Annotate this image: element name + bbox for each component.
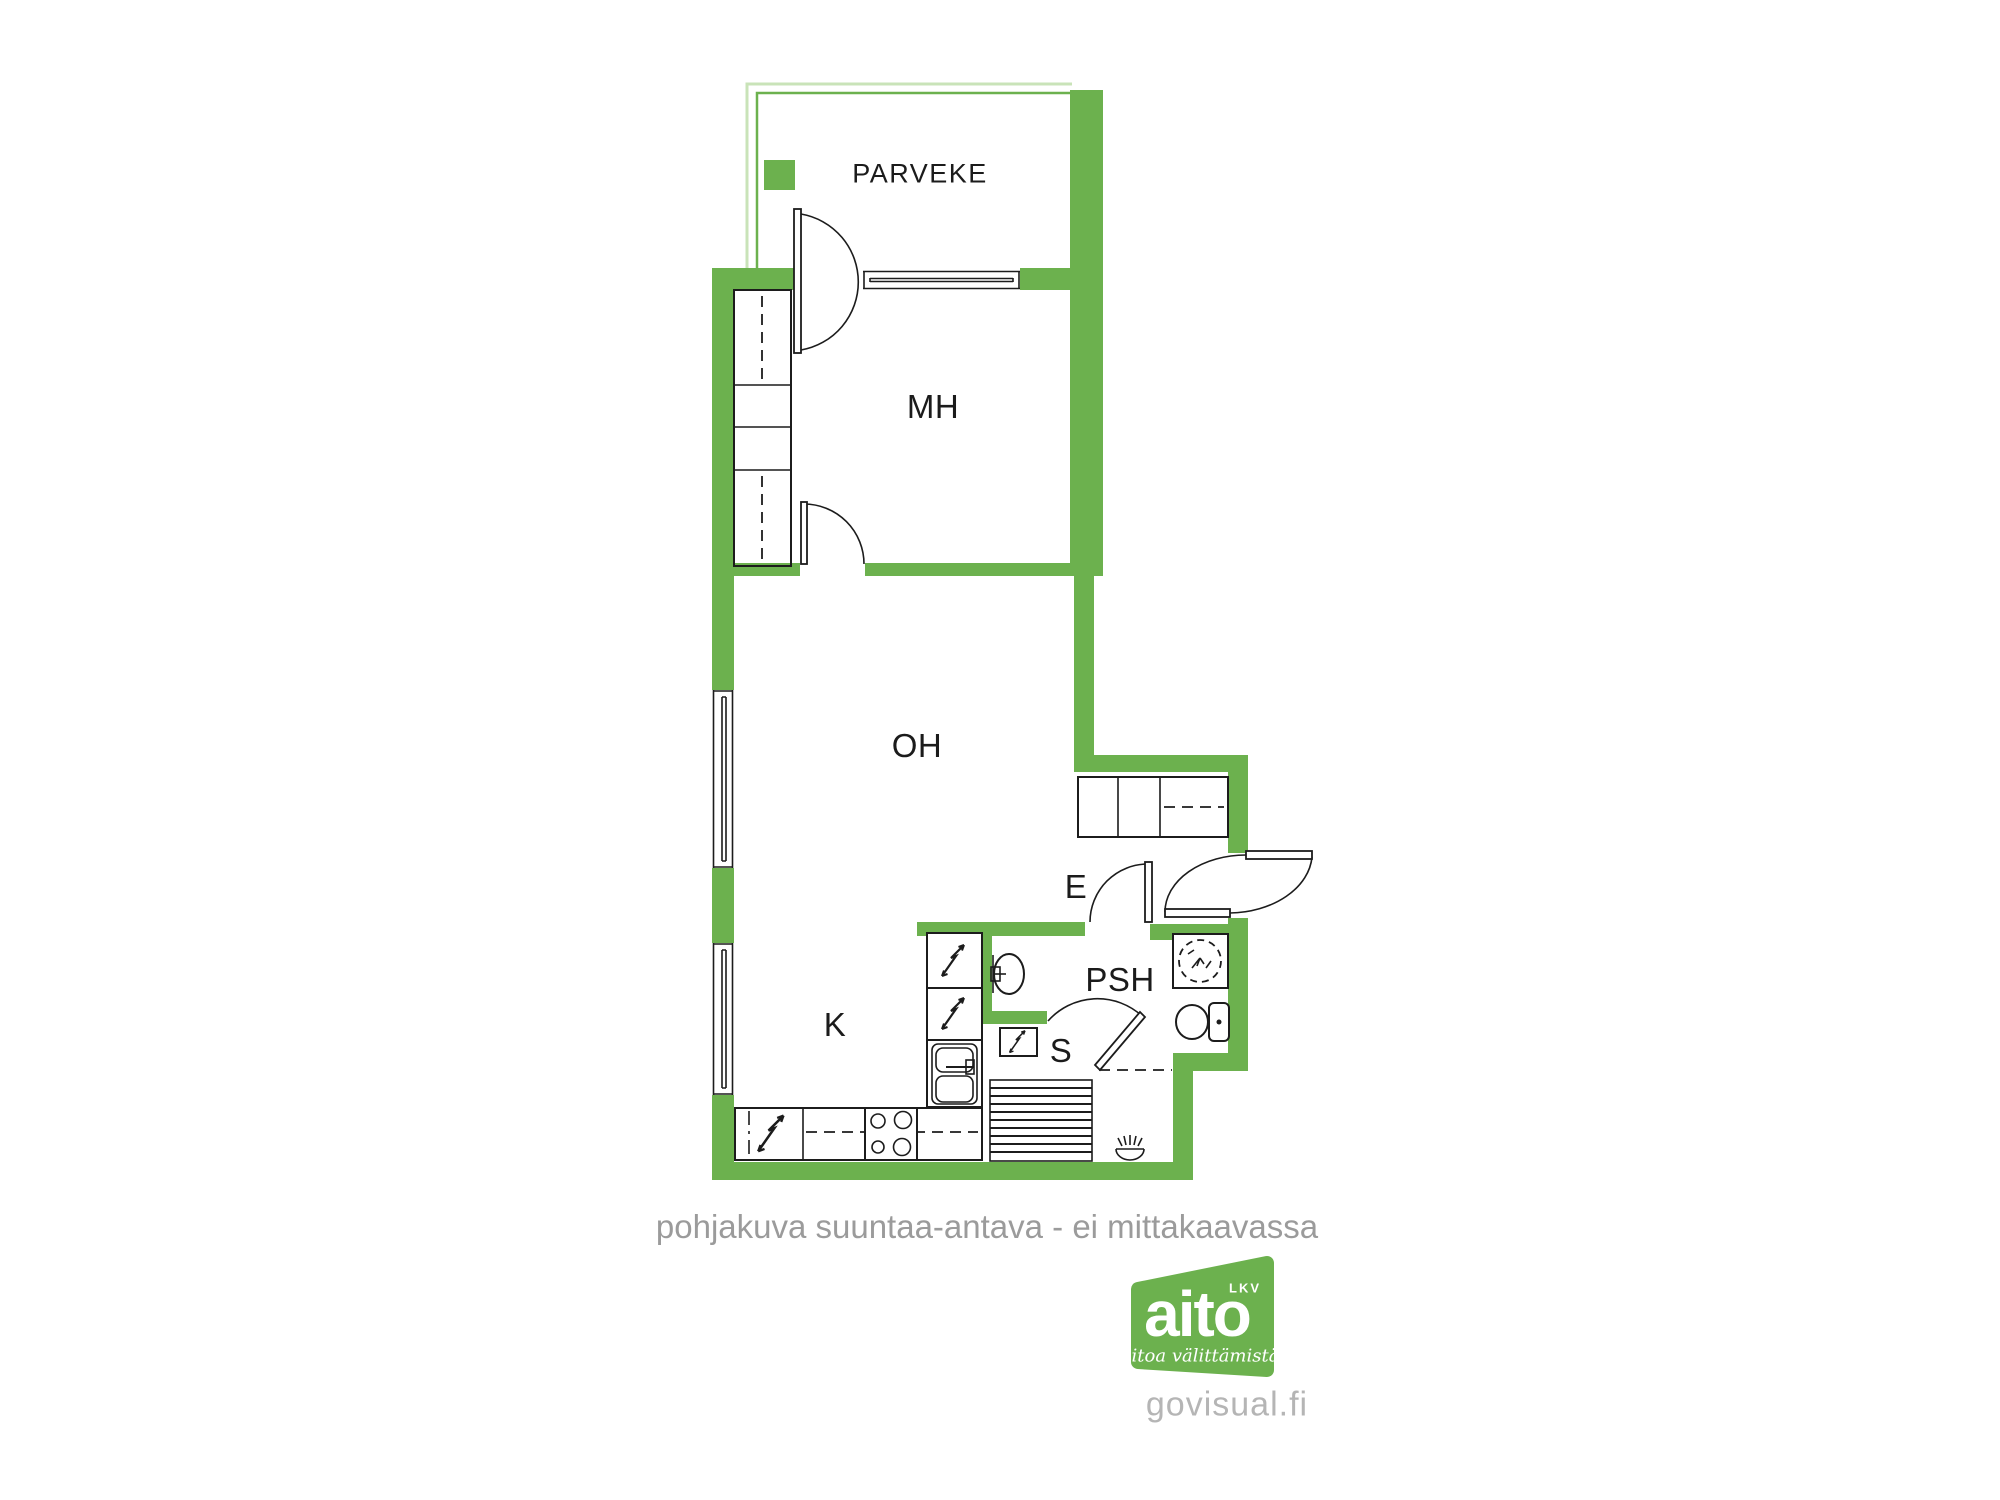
stove-icon: [865, 1108, 917, 1160]
entry-closet-icon: [1078, 777, 1228, 837]
bottom-wall: [712, 1162, 1193, 1180]
oh-right-wall: [1074, 576, 1094, 772]
right-wall-upper: [1070, 90, 1103, 576]
balcony-door-icon: [794, 209, 858, 353]
left-wall-middle: [712, 868, 734, 943]
floorplan-drawing: [0, 0, 2000, 1500]
window-icon: [713, 690, 733, 868]
left-wall-upper: [712, 268, 734, 690]
disclaimer-caption: pohjakuva suuntaa-antava - ei mittakaava…: [656, 1208, 1318, 1246]
website-text: govisual.fi: [1146, 1386, 1308, 1425]
room-label-parveke: PARVEKE: [852, 159, 988, 190]
floorplan-page: PARVEKE MH OH K E PSH S pohjakuva suunta…: [0, 0, 2000, 1500]
mh-bottom-wall-right: [865, 563, 1094, 576]
right-wall-above-door: [1228, 755, 1248, 853]
shower-icon: [1173, 934, 1228, 988]
room-label-k: K: [824, 1006, 847, 1044]
sauna-benches-icon: [990, 1080, 1092, 1161]
window-icon: [863, 271, 1020, 289]
balcony-pillar: [764, 160, 795, 190]
floor-drain-icon: [1116, 1135, 1144, 1160]
fridge-icon: [927, 933, 982, 988]
mh-bottom-wall-left: [712, 563, 800, 576]
room-label-e: E: [1065, 868, 1088, 906]
sauna-wall-stub: [992, 1011, 1047, 1024]
bedroom-door-icon: [801, 502, 864, 564]
entry-top-wall: [1074, 755, 1248, 772]
room-label-mh: MH: [907, 388, 959, 426]
room-label-s: S: [1050, 1032, 1073, 1070]
mh-top-wall-right: [1020, 268, 1074, 290]
front-door-icon: [1165, 851, 1312, 917]
freezer-icon: [927, 988, 982, 1040]
mh-top-wall-left: [712, 268, 795, 290]
aito-logo-tagline: Aitoa välittämistä: [1119, 1346, 1280, 1367]
aito-logo-badge: LKV: [1229, 1281, 1261, 1296]
bathroom-door-icon: [1090, 862, 1152, 922]
toilet-icon: [1176, 1003, 1229, 1041]
kitchen-counter: [735, 1108, 982, 1160]
right-wall-below-door: [1228, 918, 1248, 1071]
room-label-oh: OH: [892, 727, 943, 765]
bedroom-wardrobe-icon: [734, 290, 791, 566]
fixtures: [734, 290, 1229, 1161]
right-step-wall: [1173, 1053, 1248, 1071]
room-label-psh: PSH: [1085, 961, 1154, 999]
washbasin-icon: [991, 954, 1024, 994]
kitchen-sink-icon: [927, 1040, 982, 1107]
window-icon: [713, 943, 733, 1095]
sauna-heater-icon: [1000, 1028, 1037, 1056]
